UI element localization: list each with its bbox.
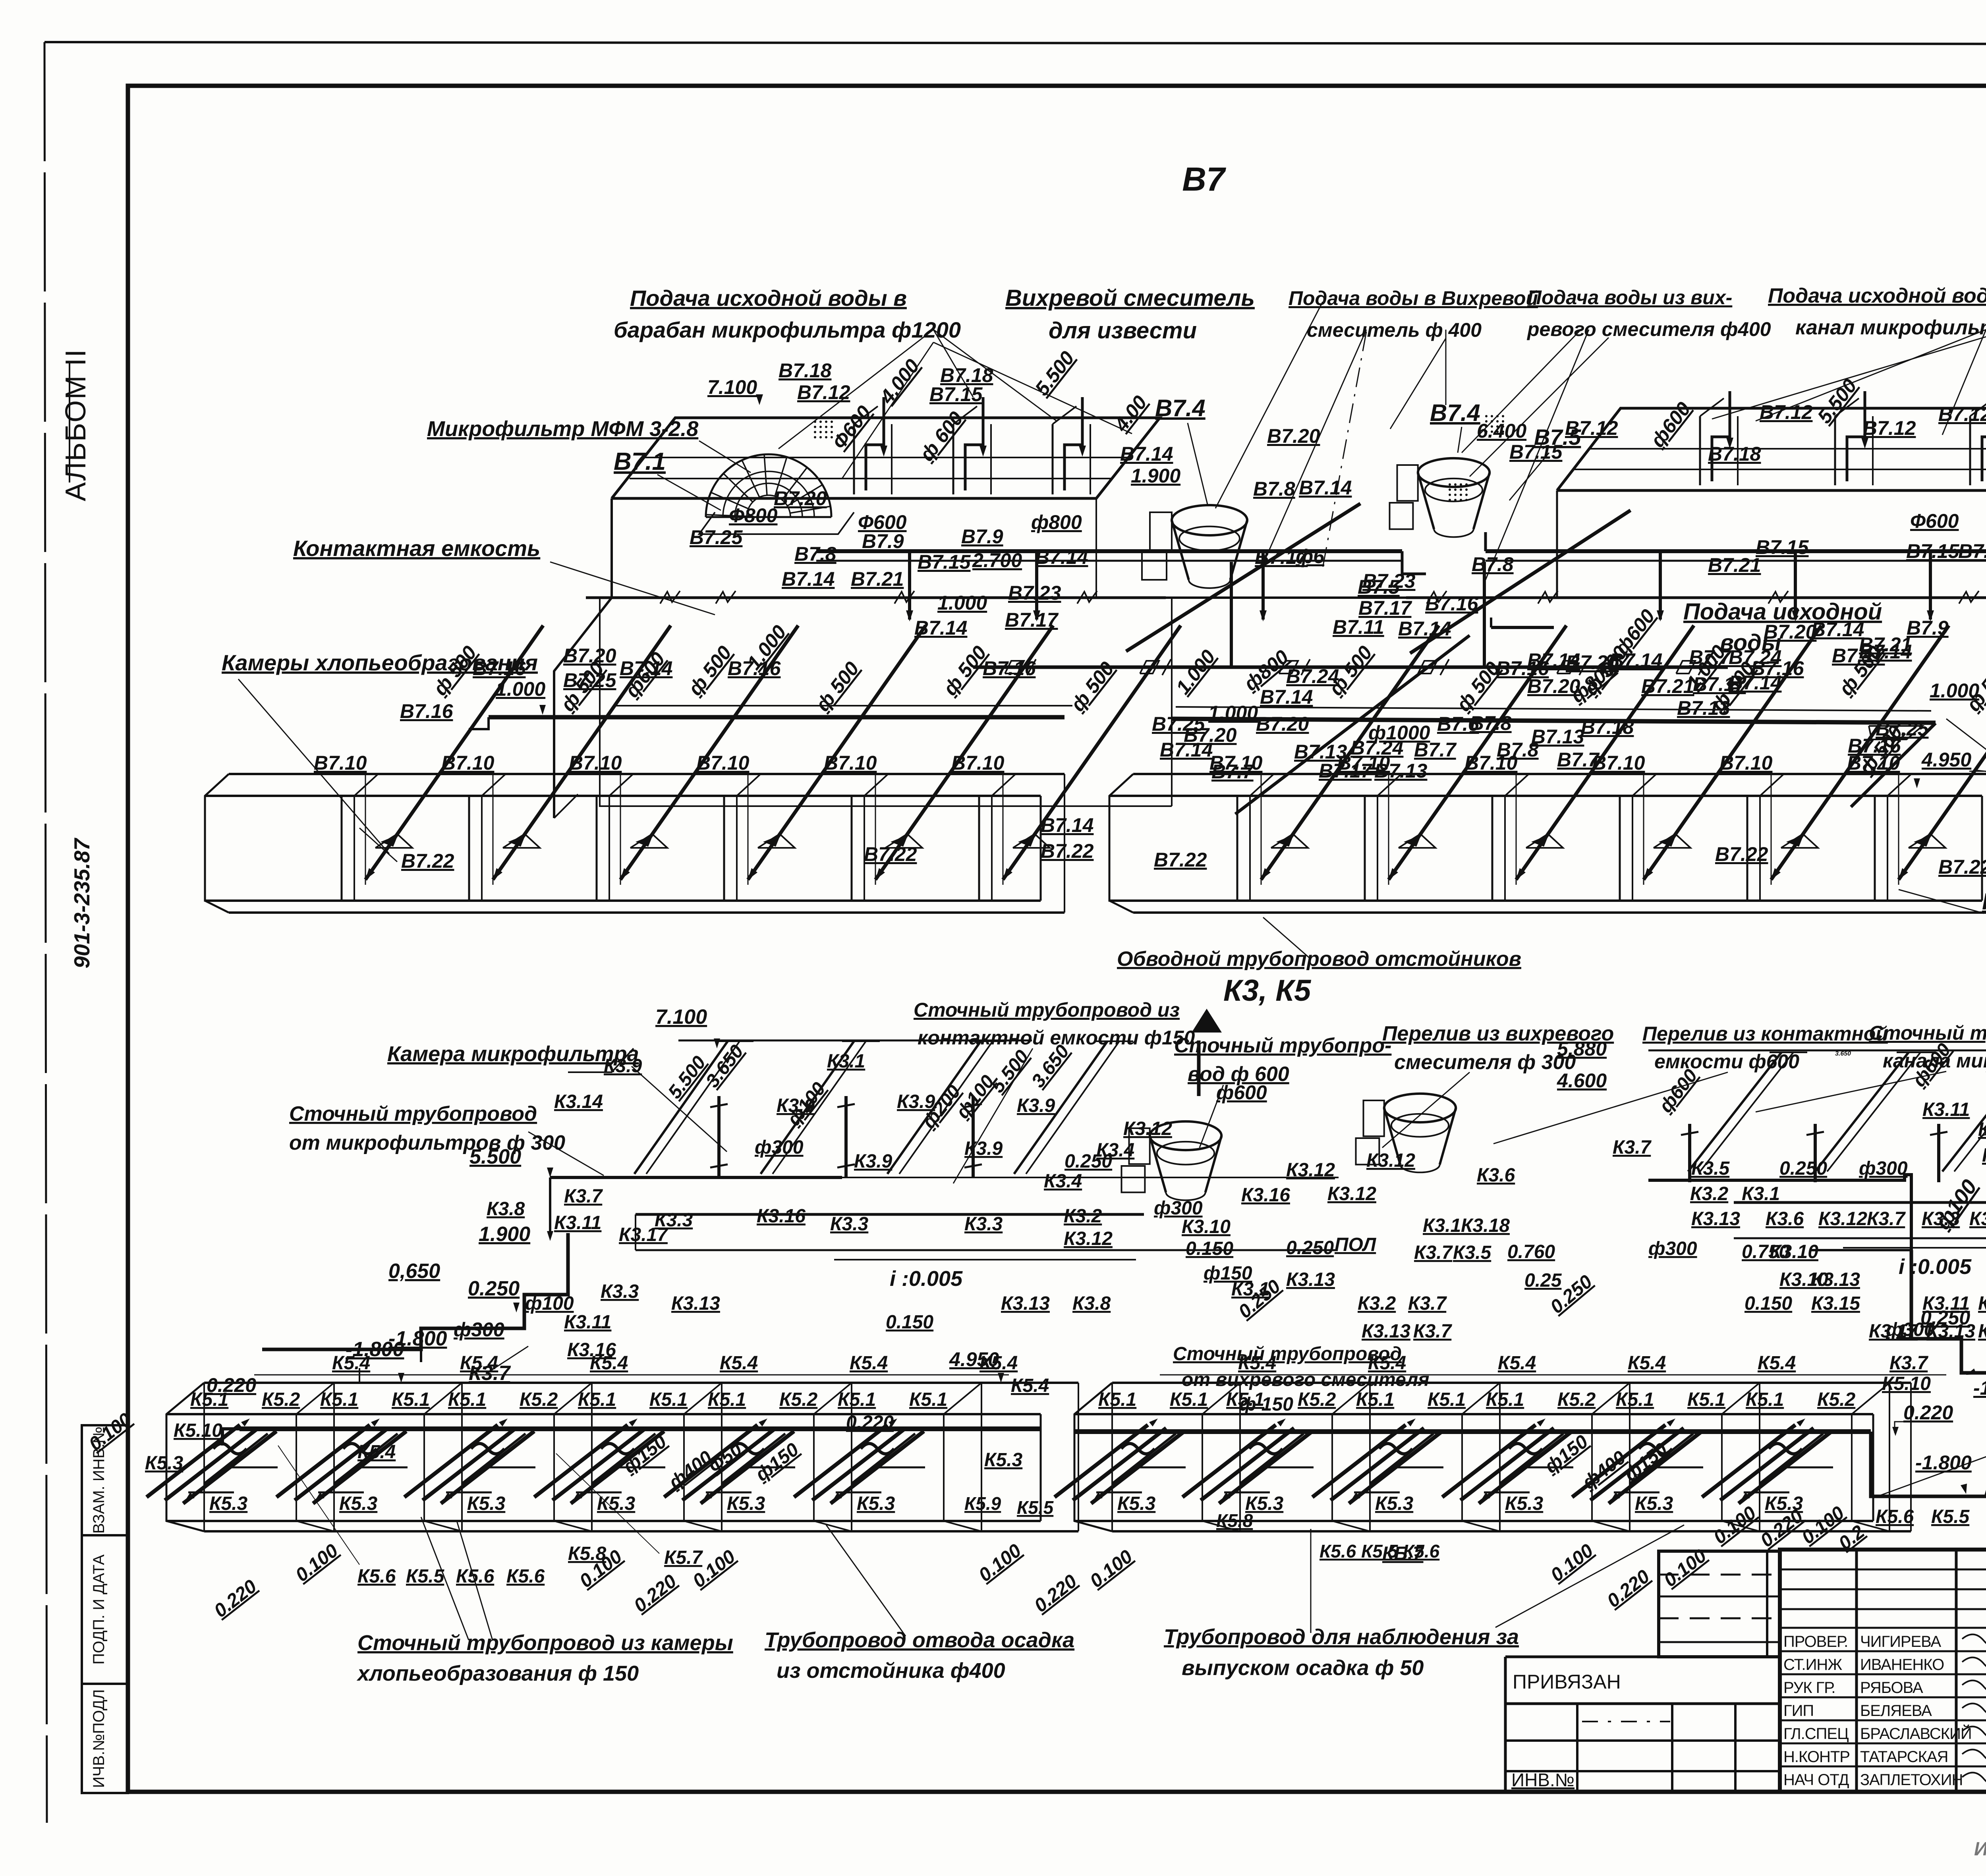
svg-text:ревого смесителя ф400: ревого смесителя ф400 bbox=[1526, 318, 1771, 340]
svg-text:К5.3: К5.3 bbox=[1375, 1493, 1414, 1514]
svg-text:1.900: 1.900 bbox=[479, 1223, 530, 1246]
svg-text:Обводной трубопровод отстойник: Обводной трубопровод отстойников bbox=[1117, 948, 1521, 971]
svg-text:из отстойника ф400: из отстойника ф400 bbox=[777, 1659, 1005, 1683]
svg-text:К5.2: К5.2 bbox=[1817, 1389, 1856, 1410]
svg-text:В7.18: В7.18 bbox=[779, 359, 832, 382]
svg-text:И: И bbox=[1974, 1839, 1986, 1860]
svg-text:К3.9: К3.9 bbox=[1017, 1095, 1055, 1116]
svg-text:-1.800: -1.800 bbox=[346, 1338, 404, 1361]
svg-text:В7.12: В7.12 bbox=[1760, 401, 1813, 423]
svg-text:К5.1: К5.1 bbox=[1746, 1389, 1784, 1410]
svg-text:В7.25: В7.25 bbox=[1152, 713, 1206, 735]
svg-text:К5.1: К5.1 bbox=[649, 1389, 688, 1410]
svg-text:К3.12: К3.12 bbox=[1064, 1228, 1113, 1249]
svg-text:К5.1: К5.1 bbox=[1486, 1389, 1524, 1410]
svg-text:БРАСЛАВСКИЙ: БРАСЛАВСКИЙ bbox=[1860, 1724, 1972, 1743]
svg-text:В7.22: В7.22 bbox=[401, 850, 454, 872]
svg-text:К3.1: К3.1 bbox=[827, 1051, 865, 1072]
svg-text:К3.13: К3.13 bbox=[1691, 1208, 1740, 1229]
svg-text:К3.8: К3.8 bbox=[1072, 1293, 1111, 1314]
svg-text:К3.2: К3.2 bbox=[1064, 1206, 1102, 1227]
svg-text:ф6: ф6 bbox=[1296, 545, 1325, 567]
svg-text:В7.9: В7.9 bbox=[961, 525, 1003, 548]
svg-text:В7.15: В7.15 bbox=[918, 551, 971, 573]
svg-text:ф300: ф300 bbox=[454, 1318, 504, 1341]
svg-text:К5.7: К5.7 bbox=[664, 1547, 703, 1568]
svg-text:К5.1: К5.1 bbox=[1226, 1389, 1264, 1410]
svg-text:К5.3: К5.3 bbox=[984, 1449, 1023, 1471]
svg-text:К3.3: К3.3 bbox=[601, 1281, 639, 1302]
svg-text:К5.2: К5.2 bbox=[520, 1389, 558, 1410]
svg-text:К5.4: К5.4 bbox=[1238, 1353, 1276, 1374]
svg-text:ТАТАРСКАЯ: ТАТАРСКАЯ bbox=[1860, 1748, 1948, 1766]
svg-text:К5.4: К5.4 bbox=[590, 1353, 628, 1374]
svg-text:К5.1: К5.1 bbox=[1356, 1389, 1394, 1410]
svg-text:0.250: 0.250 bbox=[1286, 1237, 1334, 1258]
svg-text:В7.25: В7.25 bbox=[563, 669, 617, 691]
svg-text:БЕЛЯЕВА: БЕЛЯЕВА bbox=[1860, 1702, 1932, 1720]
svg-text:0.760: 0.760 bbox=[1507, 1241, 1555, 1262]
svg-text:В7.20: В7.20 bbox=[1256, 713, 1309, 735]
svg-text:Подача исходной воды в: Подача исходной воды в bbox=[630, 286, 907, 311]
svg-text:ПОЛ: ПОЛ bbox=[1335, 1234, 1376, 1255]
svg-text:В7.8: В7.8 bbox=[794, 543, 837, 565]
svg-text:Сточный трубопровод: Сточный трубопровод bbox=[289, 1102, 537, 1125]
svg-text:ПОДП. И ДАТА: ПОДП. И ДАТА bbox=[90, 1554, 108, 1665]
svg-text:К3.16: К3.16 bbox=[1241, 1185, 1290, 1206]
svg-text:В7.22: В7.22 bbox=[864, 843, 917, 865]
svg-text:смеситель ф 400: смеситель ф 400 bbox=[1307, 319, 1482, 341]
svg-text:К3.17: К3.17 bbox=[619, 1224, 668, 1245]
svg-text:К3.13: К3.13 bbox=[1362, 1321, 1410, 1342]
svg-text:К5.3: К5.3 bbox=[1117, 1493, 1156, 1514]
svg-text:7.100: 7.100 bbox=[655, 1006, 707, 1029]
svg-text:Микрофильтр МФМ 3-2.8: Микрофильтр МФМ 3-2.8 bbox=[427, 417, 698, 441]
svg-text:К5.9: К5.9 bbox=[964, 1493, 1001, 1514]
svg-text:0.250: 0.250 bbox=[1779, 1158, 1827, 1179]
svg-text:Сточный трубопровод: Сточный трубопровод bbox=[1173, 1343, 1402, 1365]
svg-text:К5.3: К5.3 bbox=[1635, 1493, 1673, 1514]
svg-text:В7.14: В7.14 bbox=[1299, 477, 1352, 499]
svg-text:Ф800: Ф800 bbox=[729, 504, 778, 527]
svg-text:К5.8: К5.8 bbox=[568, 1543, 607, 1564]
svg-text:К5.4: К5.4 bbox=[460, 1353, 498, 1374]
svg-text:РУК ГР.: РУК ГР. bbox=[1783, 1679, 1835, 1697]
svg-text:В7.21: В7.21 bbox=[1708, 554, 1761, 576]
svg-text:ГЛ.СПЕЦ: ГЛ.СПЕЦ bbox=[1783, 1725, 1849, 1743]
svg-text:Сточный трубопровод из: Сточный трубопровод из bbox=[914, 999, 1180, 1021]
svg-text:К3.16: К3.16 bbox=[1982, 1145, 1986, 1166]
svg-text:В7: В7 bbox=[1182, 160, 1226, 198]
svg-text:К5.1: К5.1 bbox=[838, 1389, 876, 1410]
svg-text:В7.15: В7.15 bbox=[1906, 540, 1960, 562]
svg-text:К3.10: К3.10 bbox=[1779, 1269, 1828, 1290]
svg-text:К5.1: К5.1 bbox=[392, 1389, 430, 1410]
svg-text:ИВАНЕНКО: ИВАНЕНКО bbox=[1860, 1656, 1944, 1673]
svg-text:3.650: 3.650 bbox=[1835, 1050, 1851, 1057]
svg-text:выпуском осадка ф 50: выпуском осадка ф 50 bbox=[1182, 1656, 1424, 1680]
svg-text:Подача исходной: Подача исходной bbox=[1683, 599, 1882, 625]
svg-text:В7.23: В7.23 bbox=[1008, 582, 1061, 604]
svg-text:К3.4: К3.4 bbox=[1096, 1140, 1134, 1161]
svg-text:В7.8: В7.8 bbox=[1472, 553, 1514, 575]
svg-text:В7.16: В7.16 bbox=[1425, 593, 1479, 615]
svg-text:Сточный трубопровод из подводя: Сточный трубопровод из подводящего bbox=[1869, 1022, 1986, 1044]
svg-text:Вихревой смеситель: Вихревой смеситель bbox=[1005, 285, 1255, 311]
svg-text:К3.7: К3.7 bbox=[1408, 1293, 1447, 1314]
svg-text:К3.5: К3.5 bbox=[1691, 1158, 1730, 1179]
svg-text:0.150: 0.150 bbox=[1745, 1293, 1792, 1314]
svg-text:В7.22: В7.22 bbox=[1715, 843, 1768, 865]
svg-text:К5.3: К5.3 bbox=[857, 1493, 895, 1514]
svg-text:В7.10: В7.10 bbox=[824, 752, 877, 774]
svg-text:К3.3: К3.3 bbox=[964, 1214, 1003, 1235]
svg-text:К3.9: К3.9 bbox=[604, 1056, 642, 1077]
svg-text:К5.1: К5.1 bbox=[1098, 1389, 1136, 1410]
svg-text:Сточный трубопро-: Сточный трубопро- bbox=[1174, 1034, 1391, 1057]
svg-text:5.500: 5.500 bbox=[469, 1145, 521, 1168]
svg-text:К5.4: К5.4 bbox=[1011, 1375, 1049, 1396]
svg-text:К5.1: К5.1 bbox=[708, 1389, 746, 1410]
svg-text:В7.20: В7.20 bbox=[563, 645, 616, 667]
svg-text:АЛЬБОМ II: АЛЬБОМ II bbox=[60, 349, 92, 502]
svg-text:К5.5: К5.5 bbox=[1017, 1497, 1054, 1518]
svg-text:В7.22: В7.22 bbox=[1938, 856, 1986, 878]
svg-text:0.150: 0.150 bbox=[1186, 1238, 1233, 1259]
svg-text:барабан микрофильтра ф1200: барабан микрофильтра ф1200 bbox=[614, 317, 961, 342]
svg-text:К5.1: К5.1 bbox=[1428, 1389, 1466, 1410]
svg-text:К3.15: К3.15 bbox=[1811, 1293, 1860, 1314]
svg-text:Подача воды из вих-: Подача воды из вих- bbox=[1527, 286, 1732, 309]
svg-text:К5.5: К5.5 bbox=[406, 1566, 445, 1587]
svg-text:-1.800: -1.800 bbox=[1973, 1377, 1986, 1399]
svg-text:В7.15: В7.15 bbox=[1509, 441, 1563, 463]
svg-text:В7.14: В7.14 bbox=[1398, 618, 1451, 640]
svg-text:В7.16: В7.16 bbox=[983, 657, 1036, 679]
svg-text:В7.11: В7.11 bbox=[1333, 616, 1384, 638]
svg-text:К3.18: К3.18 bbox=[1461, 1215, 1510, 1236]
svg-text:К3.7: К3.7 bbox=[1613, 1137, 1652, 1158]
svg-text:К3.11: К3.11 bbox=[1922, 1099, 1970, 1120]
svg-text:К3.7: К3.7 bbox=[1978, 1321, 1986, 1342]
svg-text:В7.4: В7.4 bbox=[1155, 395, 1206, 421]
svg-text:К3.5: К3.5 bbox=[1453, 1242, 1492, 1263]
svg-text:ф300: ф300 bbox=[1859, 1158, 1908, 1179]
svg-text:К3.10: К3.10 bbox=[1770, 1241, 1818, 1262]
svg-text:В7.22: В7.22 bbox=[1154, 849, 1207, 871]
svg-text:К3.10: К3.10 bbox=[1182, 1216, 1231, 1237]
svg-text:К5.2: К5.2 bbox=[262, 1389, 300, 1410]
svg-text:К5.1: К5.1 bbox=[1687, 1389, 1725, 1410]
svg-text:1.000: 1.000 bbox=[1930, 679, 1979, 702]
svg-text:К5.5: К5.5 bbox=[1931, 1506, 1970, 1527]
svg-text:Контактная емкость: Контактная емкость bbox=[293, 536, 540, 561]
svg-text:К3.13: К3.13 bbox=[1001, 1293, 1050, 1314]
svg-text:1.900: 1.900 bbox=[1131, 465, 1180, 487]
svg-text:К3.3: К3.3 bbox=[1922, 1208, 1960, 1229]
svg-text:К3.9: К3.9 bbox=[854, 1151, 893, 1172]
svg-text:В7.16: В7.16 bbox=[400, 700, 454, 722]
svg-text:К3.12: К3.12 bbox=[1286, 1160, 1335, 1181]
svg-text:В7.14: В7.14 bbox=[1041, 814, 1093, 836]
svg-text:В7.12: В7.12 bbox=[797, 381, 850, 403]
svg-text:ПРИВЯЗАН: ПРИВЯЗАН bbox=[1513, 1671, 1621, 1693]
svg-text:В7.12: В7.12 bbox=[1863, 417, 1916, 439]
svg-text:К3.7: К3.7 bbox=[1414, 1242, 1453, 1263]
svg-text:К3.12: К3.12 bbox=[1818, 1208, 1867, 1229]
svg-text:К5.2: К5.2 bbox=[1557, 1389, 1596, 1410]
svg-text:1.000: 1.000 bbox=[496, 678, 545, 700]
svg-text:В7.10: В7.10 bbox=[1464, 752, 1518, 774]
svg-text:К3.1: К3.1 bbox=[1742, 1183, 1780, 1204]
svg-text:В7.10: В7.10 bbox=[696, 752, 750, 774]
svg-text:В7.13: В7.13 bbox=[1531, 726, 1584, 748]
svg-text:Камера микрофильтра: Камера микрофильтра bbox=[387, 1042, 639, 1066]
svg-text:В7.20: В7.20 bbox=[1267, 425, 1320, 447]
svg-text:К3.11: К3.11 bbox=[1922, 1293, 1970, 1314]
svg-text:К3.12: К3.12 bbox=[1366, 1150, 1415, 1171]
svg-text:смесителя ф 300: смесителя ф 300 bbox=[1394, 1051, 1576, 1074]
svg-text:В7.22: В7.22 bbox=[1041, 840, 1094, 862]
svg-text:В7.10: В7.10 bbox=[1337, 752, 1390, 774]
svg-text:К5.4: К5.4 bbox=[357, 1442, 396, 1463]
svg-text:В7.14: В7.14 bbox=[1859, 641, 1912, 663]
svg-text:К5.3: К5.3 bbox=[597, 1493, 636, 1514]
svg-text:ПРОВЕР.: ПРОВЕР. bbox=[1783, 1633, 1848, 1650]
svg-text:К3.12: К3.12 bbox=[1327, 1183, 1376, 1204]
svg-text:К5.4: К5.4 bbox=[850, 1353, 888, 1374]
svg-text:В7.14: В7.14 bbox=[782, 568, 835, 590]
svg-text:К3.3: К3.3 bbox=[1978, 1293, 1986, 1314]
svg-text:В7.25: В7.25 bbox=[690, 526, 743, 548]
svg-text:-1.800: -1.800 bbox=[1915, 1451, 1972, 1474]
svg-text:В7.10: В7.10 bbox=[569, 752, 622, 774]
svg-text:К5.4: К5.4 bbox=[1498, 1353, 1536, 1374]
svg-text:К5.1: К5.1 bbox=[448, 1389, 486, 1410]
svg-text:В7.10: В7.10 bbox=[314, 752, 367, 774]
svg-text:В7.12: В7.12 bbox=[1565, 417, 1618, 439]
svg-text:В7.20: В7.20 bbox=[774, 487, 827, 510]
svg-text:901-3-235.87: 901-3-235.87 bbox=[70, 838, 94, 969]
svg-text:ф100: ф100 bbox=[525, 1293, 574, 1314]
svg-text:К5.3: К5.3 bbox=[727, 1493, 765, 1514]
svg-text:В7.14: В7.14 bbox=[1035, 546, 1088, 568]
svg-text:Подача воды в Вихревой: Подача воды в Вихревой bbox=[1289, 287, 1538, 309]
svg-text:К3.7: К3.7 bbox=[1413, 1321, 1453, 1342]
svg-text:В7.15: В7.15 bbox=[1756, 536, 1809, 558]
svg-text:К3.9: К3.9 bbox=[1978, 1119, 1986, 1140]
svg-text:К3.8: К3.8 bbox=[487, 1199, 525, 1220]
svg-text:В7.16: В7.16 bbox=[1751, 657, 1804, 679]
svg-text:i :0.005: i :0.005 bbox=[890, 1267, 963, 1291]
svg-text:В7.10: В7.10 bbox=[951, 752, 1005, 774]
svg-text:6.400: 6.400 bbox=[1477, 420, 1526, 442]
svg-text:В7.18: В7.18 bbox=[1708, 443, 1761, 465]
svg-text:ИЧВ.№ПОДЛ: ИЧВ.№ПОДЛ bbox=[90, 1689, 108, 1788]
svg-text:0.150: 0.150 bbox=[886, 1312, 933, 1333]
svg-text:К3.1: К3.1 bbox=[1423, 1215, 1461, 1236]
svg-text:К5.1: К5.1 bbox=[1616, 1389, 1654, 1410]
svg-text:К5.6: К5.6 bbox=[357, 1566, 396, 1587]
svg-text:В7.16: В7.16 bbox=[1496, 657, 1549, 679]
svg-text:В7.16: В7.16 bbox=[473, 657, 526, 679]
svg-text:канал микрофильтров ф600: канал микрофильтров ф600 bbox=[1795, 316, 1986, 339]
svg-text:В7.14: В7.14 bbox=[1120, 443, 1173, 465]
svg-text:В7.10: В7.10 bbox=[1209, 752, 1263, 774]
svg-text:Камеры хлопьеобразования: Камеры хлопьеобразования bbox=[1982, 889, 1986, 915]
svg-text:Подача исходной воды в подводя: Подача исходной воды в подводящий bbox=[1768, 284, 1986, 307]
svg-text:4.600: 4.600 bbox=[1557, 1069, 1607, 1092]
svg-text:К5.3: К5.3 bbox=[209, 1493, 248, 1514]
svg-text:К5.3: К5.3 bbox=[145, 1453, 184, 1474]
svg-text:В7.14: В7.14 bbox=[1260, 686, 1313, 708]
svg-text:Трубопровод отвода осадка: Трубопровод отвода осадка bbox=[765, 1628, 1074, 1652]
svg-text:Сточный трубопровод из камеры: Сточный трубопровод из камеры bbox=[357, 1631, 733, 1655]
svg-text:К3, К5: К3, К5 bbox=[1223, 974, 1312, 1007]
svg-text:К5.4: К5.4 bbox=[1368, 1353, 1406, 1374]
svg-text:К3.11: К3.11 bbox=[554, 1212, 601, 1233]
svg-text:ф1000: ф1000 bbox=[1368, 722, 1430, 744]
svg-text:В7.12: В7.12 bbox=[1938, 403, 1986, 425]
svg-text:ф300: ф300 bbox=[1648, 1238, 1697, 1259]
svg-text:ф300: ф300 bbox=[755, 1137, 804, 1158]
svg-text:Н.КОНТР: Н.КОНТР bbox=[1783, 1748, 1850, 1766]
svg-text:К3.3: К3.3 bbox=[830, 1214, 869, 1235]
svg-text:ИНВ.№: ИНВ.№ bbox=[1511, 1770, 1575, 1790]
svg-text:К3.13: К3.13 bbox=[1926, 1321, 1975, 1342]
svg-text:К5.8: К5.8 bbox=[1216, 1510, 1253, 1531]
svg-text:К3.2: К3.2 bbox=[1358, 1293, 1396, 1314]
svg-text:К3.6: К3.6 bbox=[1477, 1165, 1515, 1186]
svg-text:Перелив из контактной: Перелив из контактной bbox=[1642, 1023, 1888, 1045]
svg-text:2.700: 2.700 bbox=[972, 549, 1022, 571]
svg-text:К5.4: К5.4 bbox=[1628, 1353, 1666, 1374]
svg-text:К5.2: К5.2 bbox=[779, 1389, 818, 1410]
svg-text:7.100: 7.100 bbox=[707, 376, 757, 398]
svg-text:0.25: 0.25 bbox=[1524, 1270, 1562, 1291]
svg-text:К3.2: К3.2 bbox=[1690, 1183, 1729, 1204]
svg-text:В7.15: В7.15 bbox=[929, 383, 983, 405]
svg-text:К3.13: К3.13 bbox=[1286, 1269, 1335, 1290]
svg-text:ф300: ф300 bbox=[1154, 1198, 1203, 1219]
svg-text:В7.10: В7.10 bbox=[1592, 752, 1645, 774]
svg-text:К5.3: К5.3 bbox=[339, 1493, 378, 1514]
svg-text:К5.1: К5.1 bbox=[1170, 1389, 1208, 1410]
svg-text:К5.4: К5.4 bbox=[1758, 1353, 1796, 1374]
svg-text:емкости ф600: емкости ф600 bbox=[1654, 1050, 1799, 1073]
svg-text:ГИП: ГИП bbox=[1783, 1702, 1814, 1720]
svg-text:К5.2: К5.2 bbox=[1298, 1389, 1336, 1410]
svg-text:К3.13: К3.13 bbox=[671, 1293, 720, 1314]
svg-text:К5.3: К5.3 bbox=[467, 1493, 506, 1514]
svg-text:ЧИГИРЕВА: ЧИГИРЕВА bbox=[1860, 1633, 1942, 1650]
svg-text:для извести: для извести bbox=[1049, 318, 1197, 344]
svg-text:ф800: ф800 bbox=[1031, 511, 1082, 533]
svg-text:В7.21: В7.21 bbox=[851, 568, 904, 590]
svg-text:ЗАПЛЕТОХИН: ЗАПЛЕТОХИН bbox=[1860, 1771, 1963, 1789]
svg-text:К3.11: К3.11 bbox=[564, 1312, 611, 1333]
svg-text:Трубопровод для наблюдения за: Трубопровод для наблюдения за bbox=[1164, 1625, 1519, 1649]
svg-text:К5.3: К5.3 bbox=[1505, 1493, 1544, 1514]
svg-text:В7.8: В7.8 bbox=[1253, 478, 1295, 500]
svg-text:4.950: 4.950 bbox=[1921, 749, 1971, 771]
svg-text:К3.7: К3.7 bbox=[1889, 1353, 1929, 1374]
svg-text:Ф600: Ф600 bbox=[1910, 510, 1959, 532]
svg-text:ф600: ф600 bbox=[1216, 1081, 1267, 1104]
svg-text:К5.1: К5.1 bbox=[320, 1389, 358, 1410]
svg-text:К3.7: К3.7 bbox=[1867, 1208, 1906, 1229]
svg-text:0.220: 0.220 bbox=[207, 1374, 256, 1396]
svg-text:К5.6: К5.6 bbox=[1876, 1506, 1914, 1527]
svg-text:К3.9: К3.9 bbox=[964, 1138, 1003, 1159]
svg-text:0,650: 0,650 bbox=[388, 1260, 440, 1283]
svg-text:К3.11: К3.11 bbox=[1969, 1208, 1986, 1229]
svg-text:хлопьеобразования ф 150: хлопьеобразования ф 150 bbox=[356, 1662, 639, 1685]
svg-text:РЯБОВА: РЯБОВА bbox=[1860, 1679, 1923, 1697]
svg-text:К5.6: К5.6 bbox=[506, 1566, 545, 1587]
svg-text:В7.5: В7.5 bbox=[1358, 576, 1400, 598]
svg-text:4.950: 4.950 bbox=[949, 1348, 999, 1370]
svg-text:НАЧ ОТД: НАЧ ОТД bbox=[1783, 1771, 1849, 1789]
svg-text:воды: воды bbox=[1720, 630, 1781, 656]
svg-text:К5.10: К5.10 bbox=[174, 1420, 222, 1441]
svg-text:0.250: 0.250 bbox=[468, 1277, 520, 1300]
svg-text:СТ.ИНЖ: СТ.ИНЖ bbox=[1783, 1656, 1842, 1673]
svg-text:К3.12: К3.12 bbox=[1123, 1118, 1172, 1139]
svg-text:К3.7: К3.7 bbox=[564, 1186, 603, 1207]
svg-text:В7.4: В7.4 bbox=[1430, 400, 1480, 426]
svg-text:1.000: 1.000 bbox=[937, 592, 987, 614]
svg-text:К5.4: К5.4 bbox=[720, 1353, 758, 1374]
svg-text:КБ.7: КБ.7 bbox=[1382, 1543, 1424, 1564]
svg-text:К5.1: К5.1 bbox=[909, 1389, 947, 1410]
svg-text:В7.21: В7.21 bbox=[1958, 540, 1986, 562]
svg-text:К3.14: К3.14 bbox=[554, 1091, 603, 1112]
svg-text:К3.4: К3.4 bbox=[1044, 1171, 1082, 1192]
svg-text:В7.10: В7.10 bbox=[1719, 752, 1773, 774]
svg-text:В7.9: В7.9 bbox=[862, 530, 904, 552]
svg-text:К3.16: К3.16 bbox=[757, 1206, 806, 1227]
svg-text:К5.1: К5.1 bbox=[578, 1389, 616, 1410]
svg-text:5.880: 5.880 bbox=[1557, 1038, 1607, 1060]
svg-text:К3.17: К3.17 bbox=[1869, 1321, 1918, 1342]
svg-text:В7.10: В7.10 bbox=[441, 752, 495, 774]
svg-text:К3.6: К3.6 bbox=[1766, 1208, 1804, 1229]
svg-text:0.220: 0.220 bbox=[846, 1412, 894, 1433]
svg-text:от микрофильтров ф 300: от микрофильтров ф 300 bbox=[289, 1131, 565, 1154]
